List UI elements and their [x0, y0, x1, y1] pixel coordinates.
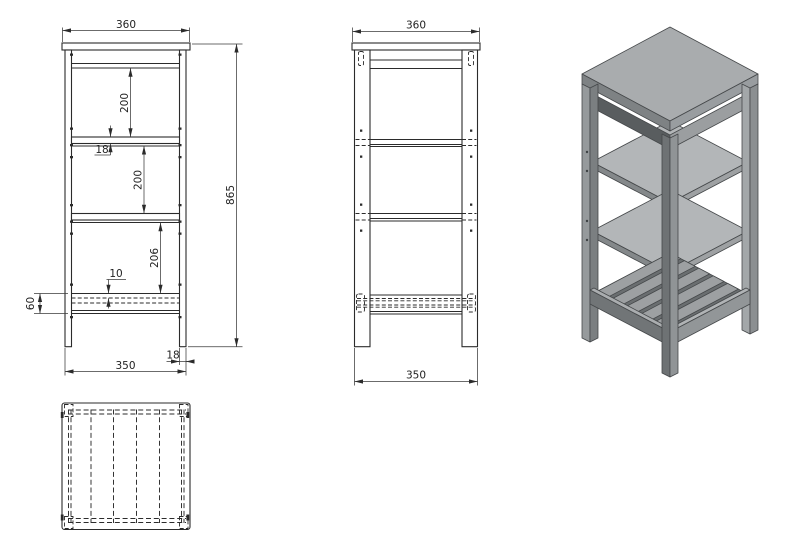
dim-label: 206	[149, 248, 161, 268]
dim-label: 360	[406, 20, 426, 32]
dim-front-bottom-rail-height: 60	[25, 294, 68, 314]
dim-label: 200	[133, 170, 145, 190]
dim-front-top-width: 360	[63, 19, 190, 42]
dim-front-upper-gap: 200	[119, 68, 131, 137]
front-right-leg	[180, 50, 187, 347]
dim-label: 18	[166, 350, 179, 362]
front-view: 360 865 200 18 200 206	[25, 19, 243, 376]
dim-label: 350	[115, 360, 135, 372]
isometric-view	[582, 27, 758, 377]
side-shelf-2	[356, 204, 477, 232]
front-bottom-shelf	[72, 294, 180, 314]
dim-side-top-width: 360	[353, 20, 480, 43]
side-top-apron	[370, 60, 462, 69]
side-bottom-shelf	[357, 294, 476, 314]
front-left-leg	[65, 50, 72, 347]
dim-label: 60	[25, 297, 37, 310]
dim-label: 350	[406, 370, 426, 382]
front-top-apron	[72, 64, 180, 69]
dim-label: 10	[109, 268, 122, 280]
dim-front-slat-offset: 10	[107, 268, 127, 309]
drawing-sheet: 360 865 200 18 200 206	[0, 0, 800, 553]
dim-front-middle-gap: 200	[133, 146, 145, 213]
top-board-outline	[62, 403, 190, 530]
dim-label: 865	[225, 185, 237, 205]
front-top-board	[62, 43, 190, 50]
top-plan-view	[61, 403, 190, 530]
dim-front-overall-height: 865	[188, 44, 243, 347]
side-shelf-1	[356, 130, 477, 158]
front-shelf-1	[72, 137, 180, 144]
side-view: 360 350	[352, 20, 480, 386]
dim-front-lower-gap: 206	[149, 223, 161, 294]
technical-drawing-canvas: 360 865 200 18 200 206	[0, 0, 800, 553]
dim-label: 18	[95, 144, 108, 156]
front-shelf-2	[72, 214, 180, 221]
side-top-board	[352, 43, 480, 50]
dim-side-bottom-width: 350	[355, 348, 478, 386]
dim-label: 200	[119, 93, 131, 113]
dim-label: 360	[116, 19, 136, 31]
iso-front-leg	[662, 134, 678, 377]
